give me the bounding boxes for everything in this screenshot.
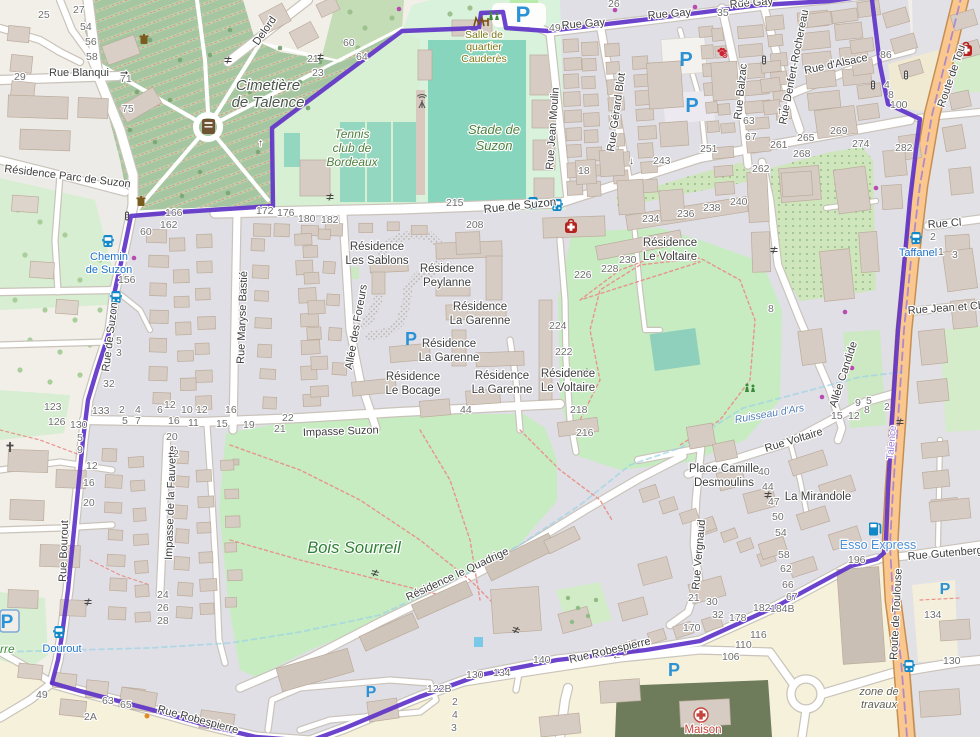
svg-text:62: 62 (780, 563, 792, 575)
svg-text:9: 9 (855, 397, 861, 409)
svg-text:Dourout: Dourout (42, 643, 81, 655)
svg-text:6: 6 (157, 404, 163, 416)
svg-text:2A: 2A (84, 711, 97, 723)
svg-text:65: 65 (120, 699, 132, 711)
svg-text:18: 18 (578, 165, 590, 177)
svg-text:La Mirandole: La Mirandole (785, 491, 851, 503)
svg-text:29: 29 (14, 71, 26, 83)
svg-text:21: 21 (274, 423, 286, 435)
svg-text:40: 40 (758, 466, 770, 478)
svg-text:182: 182 (753, 602, 771, 614)
svg-text:216: 216 (576, 427, 594, 439)
svg-text:282: 282 (895, 142, 913, 154)
svg-text:1: 1 (938, 246, 944, 258)
svg-text:de Talence: de Talence (232, 94, 305, 111)
svg-text:262: 262 (752, 163, 770, 175)
svg-text:63: 63 (743, 115, 755, 127)
svg-text:P: P (685, 95, 698, 117)
svg-text:49: 49 (549, 22, 561, 34)
svg-text:12: 12 (86, 460, 98, 472)
svg-text:15: 15 (831, 410, 843, 422)
svg-text:Cauderès: Cauderès (461, 53, 507, 65)
svg-text:15: 15 (216, 418, 228, 430)
svg-text:184B: 184B (770, 603, 795, 615)
svg-text:Résidence: Résidence (422, 338, 476, 350)
svg-text:236: 236 (677, 208, 695, 220)
svg-text:54: 54 (80, 21, 92, 33)
svg-text:2: 2 (452, 696, 458, 708)
svg-text:4: 4 (452, 709, 458, 721)
svg-text:274: 274 (852, 138, 870, 150)
svg-text:Le Bocage: Le Bocage (386, 385, 441, 397)
svg-text:16: 16 (168, 415, 180, 427)
svg-text:Tennis: Tennis (335, 127, 370, 141)
svg-text:club de: club de (333, 141, 372, 155)
svg-text:35: 35 (717, 7, 729, 19)
svg-text:134: 134 (493, 667, 511, 679)
svg-text:Résidence: Résidence (386, 371, 440, 383)
svg-text:12: 12 (848, 410, 860, 422)
svg-text:zone de: zone de (858, 686, 898, 698)
svg-text:75: 75 (122, 103, 134, 115)
svg-text:97: 97 (738, 0, 750, 5)
svg-text:3: 3 (952, 249, 958, 261)
svg-text:Les Sablons: Les Sablons (345, 255, 409, 267)
svg-text:rre: rre (0, 642, 15, 656)
svg-text:27: 27 (73, 4, 85, 16)
svg-text:3: 3 (451, 722, 457, 734)
svg-text:196: 196 (848, 554, 866, 566)
svg-text:Bordeaux: Bordeaux (326, 155, 378, 169)
svg-text:20: 20 (83, 497, 95, 509)
svg-text:La Garenne: La Garenne (419, 352, 480, 364)
svg-text:La Garenne: La Garenne (450, 315, 511, 327)
svg-text:44: 44 (762, 481, 774, 493)
svg-text:140: 140 (533, 654, 551, 666)
svg-text:Place Camille: Place Camille (689, 463, 759, 475)
svg-text:P: P (668, 660, 680, 680)
svg-text:5: 5 (116, 335, 122, 347)
svg-text:11: 11 (188, 417, 199, 429)
svg-text:156: 156 (118, 274, 136, 286)
svg-text:Le Voltaire: Le Voltaire (643, 251, 697, 263)
svg-text:130: 130 (943, 655, 961, 667)
svg-text:26: 26 (157, 602, 169, 614)
svg-text:Rue Bourout: Rue Bourout (57, 520, 71, 582)
svg-text:44: 44 (460, 404, 472, 416)
svg-text:Desmoulins: Desmoulins (694, 477, 754, 489)
svg-text:269: 269 (830, 125, 848, 137)
svg-text:Résidence: Résidence (350, 241, 404, 253)
svg-text:24: 24 (157, 589, 169, 601)
svg-text:16: 16 (225, 404, 237, 416)
svg-text:86: 86 (880, 49, 892, 61)
svg-text:Rue Cl: Rue Cl (927, 217, 961, 231)
svg-text:Suzon: Suzon (476, 138, 513, 153)
svg-text:22: 22 (282, 412, 294, 424)
svg-text:Peylanne: Peylanne (423, 277, 471, 289)
svg-text:8: 8 (864, 404, 870, 416)
svg-text:P: P (516, 2, 531, 27)
svg-text:58: 58 (86, 51, 98, 63)
svg-text:67: 67 (745, 131, 757, 143)
svg-text:60: 60 (343, 37, 355, 49)
svg-text:19: 19 (243, 419, 255, 431)
svg-text:226: 226 (574, 269, 592, 281)
svg-text:222: 222 (555, 346, 573, 358)
svg-text:20: 20 (166, 431, 178, 443)
svg-text:P: P (940, 581, 951, 598)
svg-text:2: 2 (884, 401, 890, 413)
svg-text:3: 3 (116, 347, 122, 359)
svg-text:240: 240 (730, 196, 748, 208)
svg-text:100: 100 (890, 99, 908, 111)
svg-text:126: 126 (48, 416, 66, 428)
svg-text:50: 50 (772, 511, 784, 523)
svg-text:265: 265 (797, 132, 815, 144)
svg-text:P: P (366, 684, 377, 701)
svg-text:Chemin: Chemin (90, 251, 128, 263)
svg-text:178: 178 (729, 612, 747, 624)
svg-text:↑: ↑ (777, 106, 782, 117)
svg-text:134: 134 (924, 609, 942, 621)
svg-text:28: 28 (157, 615, 169, 627)
svg-text:251: 251 (700, 143, 718, 155)
svg-text:116: 116 (750, 629, 767, 641)
svg-text:23: 23 (312, 67, 324, 79)
svg-text:Résidence: Résidence (643, 237, 697, 249)
svg-text:218: 218 (570, 404, 588, 416)
svg-text:130: 130 (70, 419, 88, 431)
svg-text:238: 238 (703, 202, 721, 214)
svg-text:21: 21 (307, 53, 319, 65)
svg-text:↑: ↑ (258, 138, 263, 149)
svg-text:25: 25 (38, 9, 50, 21)
svg-text:La Garenne: La Garenne (472, 384, 533, 396)
svg-text:243: 243 (653, 155, 671, 167)
svg-text:228: 228 (601, 263, 619, 275)
svg-text:170: 170 (683, 622, 701, 634)
svg-text:Le Voltaire: Le Voltaire (541, 382, 595, 394)
svg-text:Stade de: Stade de (468, 122, 520, 137)
svg-text:32: 32 (712, 609, 724, 621)
svg-text:8: 8 (768, 303, 774, 315)
svg-text:122B: 122B (427, 683, 452, 695)
svg-text:224: 224 (549, 320, 567, 332)
svg-text:133: 133 (92, 405, 110, 417)
svg-text:56: 56 (85, 36, 97, 48)
svg-text:49: 49 (36, 689, 48, 701)
svg-text:Cimetière: Cimetière (236, 77, 300, 94)
svg-text:Maison: Maison (684, 724, 721, 736)
svg-text:47: 47 (768, 496, 780, 508)
svg-text:215: 215 (446, 197, 464, 209)
svg-text:Résidence: Résidence (420, 263, 474, 275)
svg-text:172: 172 (256, 205, 274, 217)
svg-text:71: 71 (120, 73, 132, 85)
svg-text:21: 21 (688, 592, 700, 604)
svg-text:P: P (1, 612, 14, 633)
svg-text:Esso Express: Esso Express (840, 538, 916, 552)
svg-text:58: 58 (778, 549, 790, 561)
svg-text:67: 67 (786, 591, 798, 603)
svg-text:travaux: travaux (861, 699, 898, 711)
svg-text:180: 180 (298, 213, 316, 225)
svg-text:Bois Sourreil: Bois Sourreil (307, 539, 402, 557)
svg-text:230: 230 (619, 254, 637, 266)
svg-text:12: 12 (164, 399, 176, 411)
svg-text:30: 30 (706, 596, 718, 608)
svg-text:63: 63 (102, 695, 114, 707)
svg-text:2: 2 (930, 231, 936, 243)
svg-text:←: ← (612, 651, 622, 662)
svg-text:12: 12 (196, 404, 208, 416)
svg-text:9: 9 (77, 444, 83, 456)
svg-text:2: 2 (173, 448, 179, 460)
svg-text:66: 66 (782, 579, 794, 591)
svg-text:5: 5 (77, 432, 83, 444)
svg-text:106: 106 (722, 651, 740, 663)
svg-text:234: 234 (642, 213, 660, 225)
svg-text:208: 208 (466, 219, 484, 231)
svg-text:182: 182 (321, 214, 339, 226)
svg-text:32: 32 (103, 378, 115, 390)
svg-text:P: P (405, 329, 417, 349)
svg-text:176: 176 (277, 207, 295, 219)
svg-text:166: 166 (165, 207, 183, 219)
svg-text:162: 162 (160, 219, 178, 231)
svg-text:26: 26 (608, 0, 620, 10)
svg-text:261: 261 (770, 139, 788, 151)
svg-text:5: 5 (122, 415, 128, 427)
svg-text:130: 130 (466, 669, 484, 681)
svg-text:Taffanel: Taffanel (899, 247, 937, 259)
svg-text:7: 7 (135, 415, 141, 427)
svg-text:quartier: quartier (466, 41, 502, 53)
svg-text:64: 64 (356, 51, 368, 63)
svg-text:Salle de: Salle de (465, 29, 503, 41)
svg-text:268: 268 (793, 148, 811, 160)
svg-text:123: 123 (44, 401, 62, 413)
svg-text:60: 60 (140, 226, 152, 238)
svg-text:54: 54 (775, 527, 787, 539)
svg-text:Résidence: Résidence (453, 301, 507, 313)
svg-text:10: 10 (181, 404, 193, 416)
svg-text:↓: ↓ (629, 156, 634, 167)
svg-text:Résidence: Résidence (541, 368, 595, 380)
svg-text:P: P (679, 49, 692, 71)
svg-text:Résidence: Résidence (475, 370, 529, 382)
svg-text:16: 16 (83, 477, 95, 489)
svg-text:Rue Blanqui: Rue Blanqui (49, 67, 109, 79)
